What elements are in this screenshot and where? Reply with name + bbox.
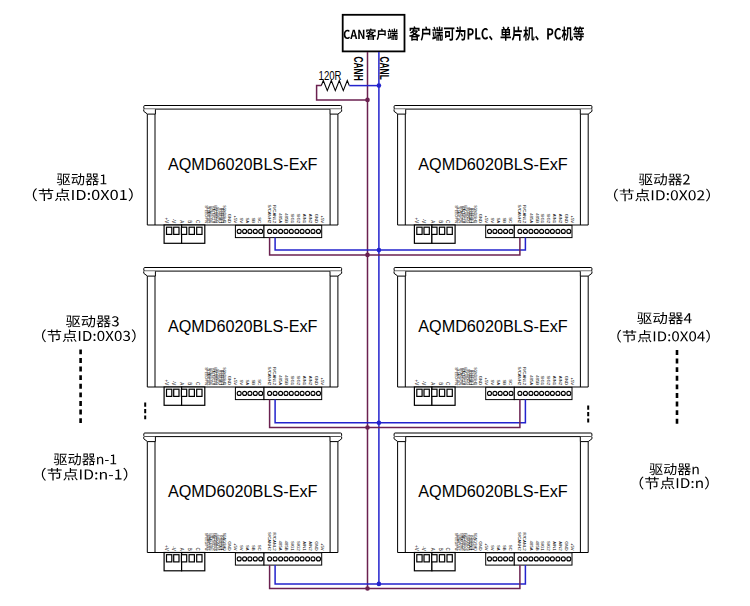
- svg-text:CANH: CANH: [352, 57, 365, 81]
- svg-text:120R: 120R: [319, 69, 342, 82]
- svg-text:CANL: CANL: [378, 57, 391, 80]
